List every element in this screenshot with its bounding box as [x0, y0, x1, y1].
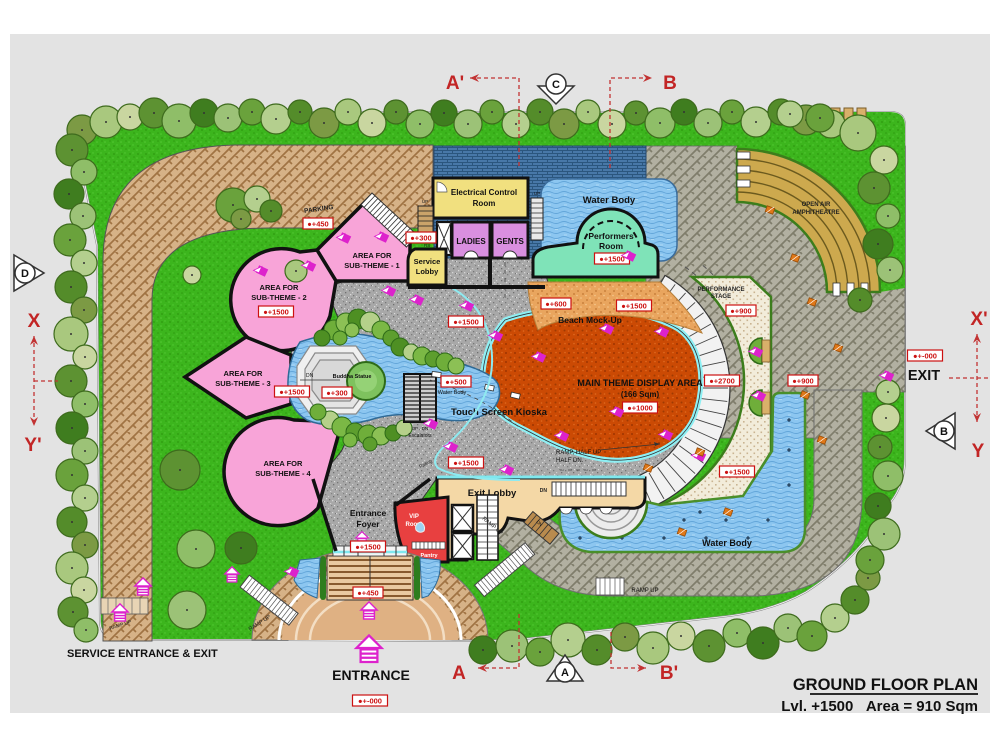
svg-text:Water Body: Water Body: [583, 195, 636, 206]
svg-text:LADIES: LADIES: [456, 237, 486, 246]
svg-text:UP: UP: [534, 191, 540, 196]
svg-text:●+600: ●+600: [545, 300, 566, 309]
svg-text:DN: DN: [540, 488, 548, 494]
svg-text:A': A': [446, 73, 464, 94]
svg-text:RAMP UP: RAMP UP: [631, 588, 658, 594]
svg-text:SUB-THEME - 4: SUB-THEME - 4: [255, 469, 311, 478]
svg-text:UP: UP: [422, 199, 428, 204]
svg-text:●+1500: ●+1500: [621, 302, 647, 311]
svg-text:Room: Room: [599, 241, 624, 251]
svg-text:Foyer: Foyer: [356, 519, 380, 529]
svg-text:X: X: [28, 311, 41, 332]
svg-text:SERVICE ENTRANCE & EXIT: SERVICE ENTRANCE & EXIT: [67, 648, 218, 660]
svg-text:●+1500: ●+1500: [453, 318, 479, 327]
svg-text:●+-000: ●+-000: [358, 697, 382, 706]
svg-text:A: A: [452, 663, 466, 684]
svg-text:MAIN THEME DISPLAY AREA: MAIN THEME DISPLAY AREA: [577, 378, 703, 388]
svg-text:●+1500: ●+1500: [263, 308, 289, 317]
svg-text:A: A: [561, 667, 569, 679]
svg-text:B: B: [663, 73, 677, 94]
svg-text:Touch Screen Kioska: Touch Screen Kioska: [451, 407, 548, 418]
svg-text:Lvl. +1500 Area = 910 Sqm: Lvl. +1500 Area = 910 Sqm: [781, 698, 978, 715]
svg-text:Water Body: Water Body: [702, 538, 752, 548]
svg-text:C: C: [552, 79, 560, 91]
svg-text:●+900: ●+900: [792, 377, 813, 386]
svg-text:RS: RS: [424, 243, 430, 248]
svg-text:STAGE: STAGE: [711, 294, 731, 300]
svg-text:Performers: Performers: [588, 231, 634, 241]
svg-text:D: D: [21, 268, 29, 280]
svg-text:AREA FOR: AREA FOR: [264, 459, 303, 468]
svg-text:B: B: [940, 426, 948, 438]
svg-text:ENTRANCE: ENTRANCE: [332, 667, 410, 683]
svg-text:AREA FOR: AREA FOR: [224, 369, 263, 378]
svg-text:PERFORMANCE: PERFORMANCE: [697, 287, 744, 293]
svg-text:UP DN: UP DN: [412, 426, 429, 431]
svg-text:GROUND FLOOR PLAN: GROUND FLOOR PLAN: [793, 676, 978, 694]
svg-text:AMPHITHEATRE: AMPHITHEATRE: [792, 210, 839, 216]
svg-text:Escalators: Escalators: [408, 433, 432, 439]
svg-text:SUB-THEME - 2: SUB-THEME - 2: [251, 293, 306, 302]
svg-text:●+450: ●+450: [307, 220, 328, 229]
svg-text:HALF DN.: HALF DN.: [556, 458, 584, 464]
svg-text:Y: Y: [972, 441, 985, 462]
svg-text:SUB-THEME - 3: SUB-THEME - 3: [215, 379, 270, 388]
svg-text:●+1500: ●+1500: [355, 543, 381, 552]
svg-text:●+450: ●+450: [357, 589, 378, 598]
svg-text:Buddha Statue: Buddha Statue: [333, 374, 372, 380]
svg-text:Lobby: Lobby: [416, 267, 439, 276]
svg-text:EXIT: EXIT: [908, 368, 940, 384]
svg-text:SUB-THEME - 1: SUB-THEME - 1: [344, 261, 399, 270]
svg-text:●+1500: ●+1500: [453, 459, 479, 468]
svg-text:RAMP, HALF UP: RAMP, HALF UP: [556, 450, 601, 456]
svg-text:Service: Service: [414, 257, 441, 266]
svg-text:(166 Sqm): (166 Sqm): [621, 390, 660, 399]
svg-text:Room: Room: [473, 199, 496, 208]
svg-text:X': X': [970, 309, 987, 330]
svg-text:●+1500: ●+1500: [599, 255, 625, 264]
svg-text:●+1500: ●+1500: [724, 468, 750, 477]
svg-text:Entrance: Entrance: [350, 508, 387, 518]
svg-text:●+300: ●+300: [326, 389, 347, 398]
svg-text:Y': Y': [24, 435, 41, 456]
svg-text:VIP: VIP: [409, 514, 419, 520]
svg-text:AREA FOR: AREA FOR: [260, 283, 299, 292]
svg-text:Water Body: Water Body: [438, 390, 467, 396]
svg-text:OPEN AIR: OPEN AIR: [802, 202, 831, 208]
svg-text:●+300: ●+300: [410, 234, 431, 243]
svg-text:Electrical Control: Electrical Control: [451, 188, 517, 197]
svg-text:●+-000: ●+-000: [913, 352, 937, 361]
svg-text:DN: DN: [306, 373, 314, 379]
svg-text:●+1000: ●+1000: [627, 404, 653, 413]
svg-text:GENTS: GENTS: [496, 237, 524, 246]
svg-text:Beach Mock-Up: Beach Mock-Up: [558, 315, 622, 325]
svg-text:●+500: ●+500: [445, 378, 466, 387]
svg-text:●+1500: ●+1500: [279, 388, 305, 397]
svg-text:●+2700: ●+2700: [709, 377, 735, 386]
svg-text:AREA FOR: AREA FOR: [353, 251, 392, 260]
svg-text:B': B': [660, 663, 678, 684]
svg-text:●+900: ●+900: [730, 307, 751, 316]
